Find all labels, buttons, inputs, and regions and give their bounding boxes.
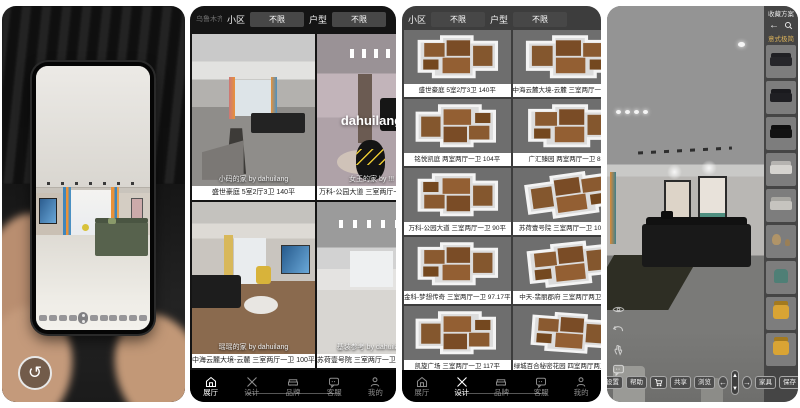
- toolbar-button[interactable]: [90, 315, 98, 321]
- toolbar-button[interactable]: [49, 315, 57, 321]
- phone-screen: [36, 66, 150, 330]
- editor-toolbar: 设置 帮助 共享 浏览 ← ▲ ▼ → 家具 保存: [607, 370, 760, 395]
- chat-bubble-icon: [535, 376, 547, 388]
- tv-screen: [39, 198, 57, 224]
- help-button[interactable]: 帮助: [626, 376, 647, 389]
- floorplan-drawing: [521, 33, 601, 81]
- ceiling-spotlight: [738, 42, 745, 47]
- rotate-ccw-icon: ↺: [28, 363, 42, 382]
- round-table: [244, 296, 278, 314]
- community-filter-label: 小区: [408, 13, 426, 26]
- room-viewport[interactable]: [607, 6, 764, 402]
- sofa-icon: [495, 376, 507, 388]
- room-photo: dahuilang 女王的家 by !!!: [317, 34, 396, 186]
- floorplan-card[interactable]: 铭悦凯庭 两室两厅一卫 104平: [404, 99, 511, 166]
- floorplan-caption: 中海云麓大境-云麓 三室两厅一卫 100平: [513, 84, 601, 97]
- floorplan-image: [513, 168, 601, 222]
- furniture-sidebar: 收藏方案 ← 意式极简: [764, 6, 798, 402]
- room-photo: 基装参考 by dahuilang: [317, 202, 396, 354]
- floorplan-drawing: [518, 237, 601, 291]
- tab-mine[interactable]: 我的: [561, 370, 601, 402]
- wall-lamp-glow: [701, 160, 717, 176]
- community-filter-dropdown[interactable]: 不限: [431, 12, 485, 27]
- person-icon: [575, 376, 587, 388]
- toolbar-button[interactable]: [109, 315, 117, 321]
- cart-icon: [654, 378, 663, 387]
- floorplan-caption: 铭悦凯庭 两室两厅一卫 104平: [404, 153, 511, 166]
- right-arrow-icon: →: [743, 378, 751, 387]
- search-icon[interactable]: [784, 21, 793, 30]
- phone: [32, 62, 154, 334]
- showroom-card[interactable]: 瑶瑶的家 by dahuilang 中海云麓大境-云麓 三室两厅一卫 100平: [192, 202, 315, 368]
- walk-joystick[interactable]: ▲ ▼: [731, 370, 739, 395]
- floorplan-image: [404, 99, 511, 153]
- panel-ar-photo: ↺: [2, 6, 185, 402]
- panel-3d-editor: 设置 帮助 共享 浏览 ← ▲ ▼ → 家具 保存 收藏方案 ← 意式极简: [607, 6, 798, 402]
- floorplan-caption: 盛世豪庭 5室2厅3卫 140平: [404, 84, 511, 97]
- floorplan-image: [404, 30, 511, 84]
- panel-floorplan-list: 小区 不限 户型 不限 盛世豪庭 5室2厅3卫 140平 中海云麓大境-云麓 三…: [402, 6, 601, 402]
- turn-right-button[interactable]: →: [742, 376, 752, 389]
- furniture-thumbnail[interactable]: [766, 189, 796, 222]
- photo-overlay-title: 基装参考 by dahuilang: [317, 340, 396, 354]
- tab-brand[interactable]: 品牌: [272, 370, 313, 402]
- type-filter-dropdown[interactable]: 不限: [332, 12, 386, 27]
- floorplan-caption: 苏荷壹号院 三室两厅一卫 106.27平: [513, 222, 601, 235]
- floorplan-caption: 万科-公园大道 三室两厅一卫 90平: [404, 222, 511, 235]
- ceiling-lights: [339, 220, 396, 228]
- floorplan-card[interactable]: 金科-梦想传奇 三室两厅一卫 97.17平: [404, 237, 511, 304]
- floorplan-card[interactable]: 苏荷壹号院 三室两厅一卫 106.27平: [513, 168, 601, 235]
- room-photo: 小码的家 by dahuilang: [192, 34, 315, 186]
- photo-overlay-title: 小码的家 by dahuilang: [192, 172, 315, 186]
- yellow-object: [82, 224, 89, 231]
- furniture-thumbnail[interactable]: [766, 225, 796, 258]
- curtain: [229, 77, 235, 120]
- furniture-thumbnail[interactable]: [766, 117, 796, 150]
- furniture-thumbnail[interactable]: [766, 333, 796, 366]
- floorplan-card[interactable]: 广汇臻园 两室两厅一卫 82平: [513, 99, 601, 166]
- community-filter-label: 小区: [227, 13, 245, 26]
- tab-showroom[interactable]: 展厅: [190, 370, 231, 402]
- photo-overlay-title: 瑶瑶的家 by dahuilang: [192, 340, 315, 354]
- sofa-icon: [287, 376, 299, 388]
- panel-showroom-list: 乌鲁木齐 小区 不限 户型 不限 小码的家 by dahuilang 盛世豪庭 …: [190, 6, 396, 402]
- left-arrow-icon: ←: [719, 378, 727, 387]
- floorplan-image: [513, 306, 601, 360]
- showroom-card[interactable]: 小码的家 by dahuilang 盛世豪庭 5室2厅3卫 140平: [192, 34, 315, 200]
- green-sofa: [95, 222, 147, 256]
- home-icon: [416, 376, 428, 388]
- floorplan-drawing: [411, 102, 503, 150]
- turn-left-button[interactable]: ←: [718, 376, 728, 389]
- viewport-side-tools: [612, 303, 625, 376]
- track-lighting: [638, 146, 732, 154]
- filter-header: 小区 不限 户型 不限: [402, 6, 601, 32]
- floorplan-image: [513, 237, 601, 291]
- cart-button[interactable]: [650, 376, 667, 389]
- back-arrow-icon[interactable]: ←: [769, 21, 779, 31]
- window: [234, 80, 271, 116]
- floorplan-card[interactable]: 盛世豪庭 5室2厅3卫 140平: [404, 30, 511, 97]
- toolbar-button[interactable]: [59, 315, 67, 321]
- tab-service[interactable]: 客服: [521, 370, 561, 402]
- type-filter-label: 户型: [490, 13, 508, 26]
- sofa-pillow: [108, 218, 116, 224]
- furniture-thumbnail[interactable]: [766, 81, 796, 114]
- tv-screen: [281, 245, 310, 274]
- floorplan-card[interactable]: 绿城百合秘密花园 四室两厅两卫 206平: [513, 306, 601, 373]
- showroom-card[interactable]: dahuilang 女王的家 by !!! 万科-公园大道 三室两厅一卫 90平: [317, 34, 396, 200]
- toolbar-button[interactable]: [39, 315, 47, 321]
- photo-overlay-title: 女王的家 by !!!: [317, 172, 396, 186]
- floorplan-drawing: [411, 171, 503, 219]
- floorplan-grid: 盛世豪庭 5室2厅3卫 140平 中海云麓大境-云麓 三室两厅一卫 100平 铭…: [404, 30, 599, 402]
- type-filter-dropdown[interactable]: 不限: [513, 12, 567, 27]
- design-tools-icon: [246, 376, 258, 388]
- tab-design[interactable]: 设计: [442, 370, 482, 402]
- tab-divider-line: [456, 393, 548, 394]
- floorplan-card[interactable]: 中天-翡丽郡府 三室两厅两卫 115平: [513, 237, 601, 304]
- city-label: 乌鲁木齐: [196, 14, 222, 24]
- listing-caption: 苏荷壹号院 三室两厅一卫 106.27平: [317, 354, 396, 368]
- browse-button[interactable]: 浏览: [694, 376, 715, 389]
- floorplan-caption: 中天-翡丽郡府 三室两厅两卫 115平: [513, 291, 601, 304]
- room-photo: 瑶瑶的家 by dahuilang: [192, 202, 315, 354]
- furniture-button[interactable]: 家具: [755, 376, 776, 389]
- furniture-thumbnail[interactable]: [766, 261, 796, 294]
- listing-caption: 万科-公园大道 三室两厅一卫 90平: [317, 186, 396, 200]
- design-tools-icon: [456, 376, 468, 388]
- room-ceiling: [36, 66, 150, 187]
- black-sofa: [642, 224, 752, 268]
- toolbar-button[interactable]: [139, 315, 147, 321]
- floorplan-caption: 广汇臻园 两室两厅一卫 82平: [513, 153, 601, 166]
- sofa: [251, 113, 305, 133]
- bottom-tab-bar: 展厅 设计 品牌 客服 我的: [402, 370, 601, 402]
- hand-icon[interactable]: [612, 343, 625, 356]
- toolbar-button[interactable]: [119, 315, 127, 321]
- furniture-thumbnail[interactable]: [766, 153, 796, 186]
- person-icon: [369, 376, 381, 388]
- type-filter-label: 户型: [309, 13, 327, 26]
- listing-caption: 盛世豪庭 5室2厅3卫 140平: [192, 186, 315, 200]
- toolbar-button[interactable]: [100, 315, 108, 321]
- move-dpad[interactable]: [78, 312, 88, 324]
- floorplan-drawing: [411, 309, 503, 357]
- curtain-sliver: [610, 172, 616, 243]
- yellow-chair: [256, 266, 271, 284]
- chat-bubble-icon: [328, 376, 340, 388]
- showroom-card[interactable]: 基装参考 by dahuilang 苏荷壹号院 三室两厅一卫 106.27平: [317, 202, 396, 368]
- floorplan-image: [404, 237, 511, 291]
- curtain-left: [63, 187, 71, 237]
- phone-toolbar[interactable]: [39, 312, 146, 324]
- sidebar-nav: ←: [769, 18, 793, 33]
- ceiling-spotlights: [47, 182, 138, 185]
- tab-brand[interactable]: 品牌: [482, 370, 522, 402]
- rotate-button[interactable]: ↺: [18, 356, 52, 390]
- watermark-text: dahuilang: [317, 113, 396, 128]
- toolbar-button[interactable]: [69, 315, 77, 321]
- tab-design[interactable]: 设计: [231, 370, 272, 402]
- down-arrow-icon: ▼: [732, 386, 738, 392]
- floorplan-drawing: [411, 33, 503, 81]
- cabinet: [358, 74, 371, 144]
- tab-service[interactable]: 客服: [314, 370, 355, 402]
- listing-caption: 中海云麓大境-云麓 三室两厅一卫 100平: [192, 354, 315, 368]
- furniture-thumbnail[interactable]: [766, 45, 796, 78]
- community-filter-dropdown[interactable]: 不限: [250, 12, 304, 27]
- floorplan-image: [513, 99, 601, 153]
- eye-icon[interactable]: [612, 303, 625, 316]
- sofa: [192, 275, 241, 308]
- ceiling-spotlights: [616, 101, 663, 105]
- tab-showroom[interactable]: 展厅: [402, 370, 442, 402]
- floorplan-card[interactable]: 凯旋广场 三室两厅一卫 117平: [404, 306, 511, 373]
- ceiling-lights: [350, 49, 394, 58]
- floorplan-card[interactable]: 中海云麓大境-云麓 三室两厅一卫 100平: [513, 30, 601, 97]
- undo-icon[interactable]: [612, 323, 625, 336]
- floorplan-drawing: [523, 308, 601, 358]
- floorplan-card[interactable]: 万科-公园大道 三室两厅一卫 90平: [404, 168, 511, 235]
- floorplan-caption: 金科-梦想传奇 三室两厅一卫 97.17平: [404, 291, 511, 304]
- home-icon: [205, 376, 217, 388]
- floorplan-drawing: [518, 168, 601, 222]
- furniture-thumbnail[interactable]: [766, 297, 796, 330]
- filter-header: 乌鲁木齐 小区 不限 户型 不限: [190, 6, 396, 32]
- bottom-tab-bar: 展厅 设计 品牌 客服 我的: [190, 370, 396, 402]
- settings-button[interactable]: 设置: [607, 376, 623, 389]
- floorplan-image: [404, 168, 511, 222]
- floorplan-drawing: [521, 102, 601, 150]
- tab-mine[interactable]: 我的: [355, 370, 396, 402]
- wall-lamp-glow: [667, 164, 683, 180]
- floorplan-image: [404, 306, 511, 360]
- share-button[interactable]: 共享: [670, 376, 691, 389]
- style-category-label[interactable]: 意式极简: [768, 33, 794, 43]
- window: [350, 251, 394, 287]
- save-button[interactable]: 保存: [779, 376, 798, 389]
- floorplan-drawing: [411, 240, 503, 288]
- toolbar-button[interactable]: [129, 315, 137, 321]
- showroom-grid: 小码的家 by dahuilang 盛世豪庭 5室2厅3卫 140平 dahui…: [192, 34, 394, 368]
- up-arrow-icon: ▲: [732, 373, 738, 379]
- tab-divider-line: [246, 393, 341, 394]
- floorplan-image: [513, 30, 601, 84]
- collect-scheme-label[interactable]: 收藏方案: [768, 8, 794, 18]
